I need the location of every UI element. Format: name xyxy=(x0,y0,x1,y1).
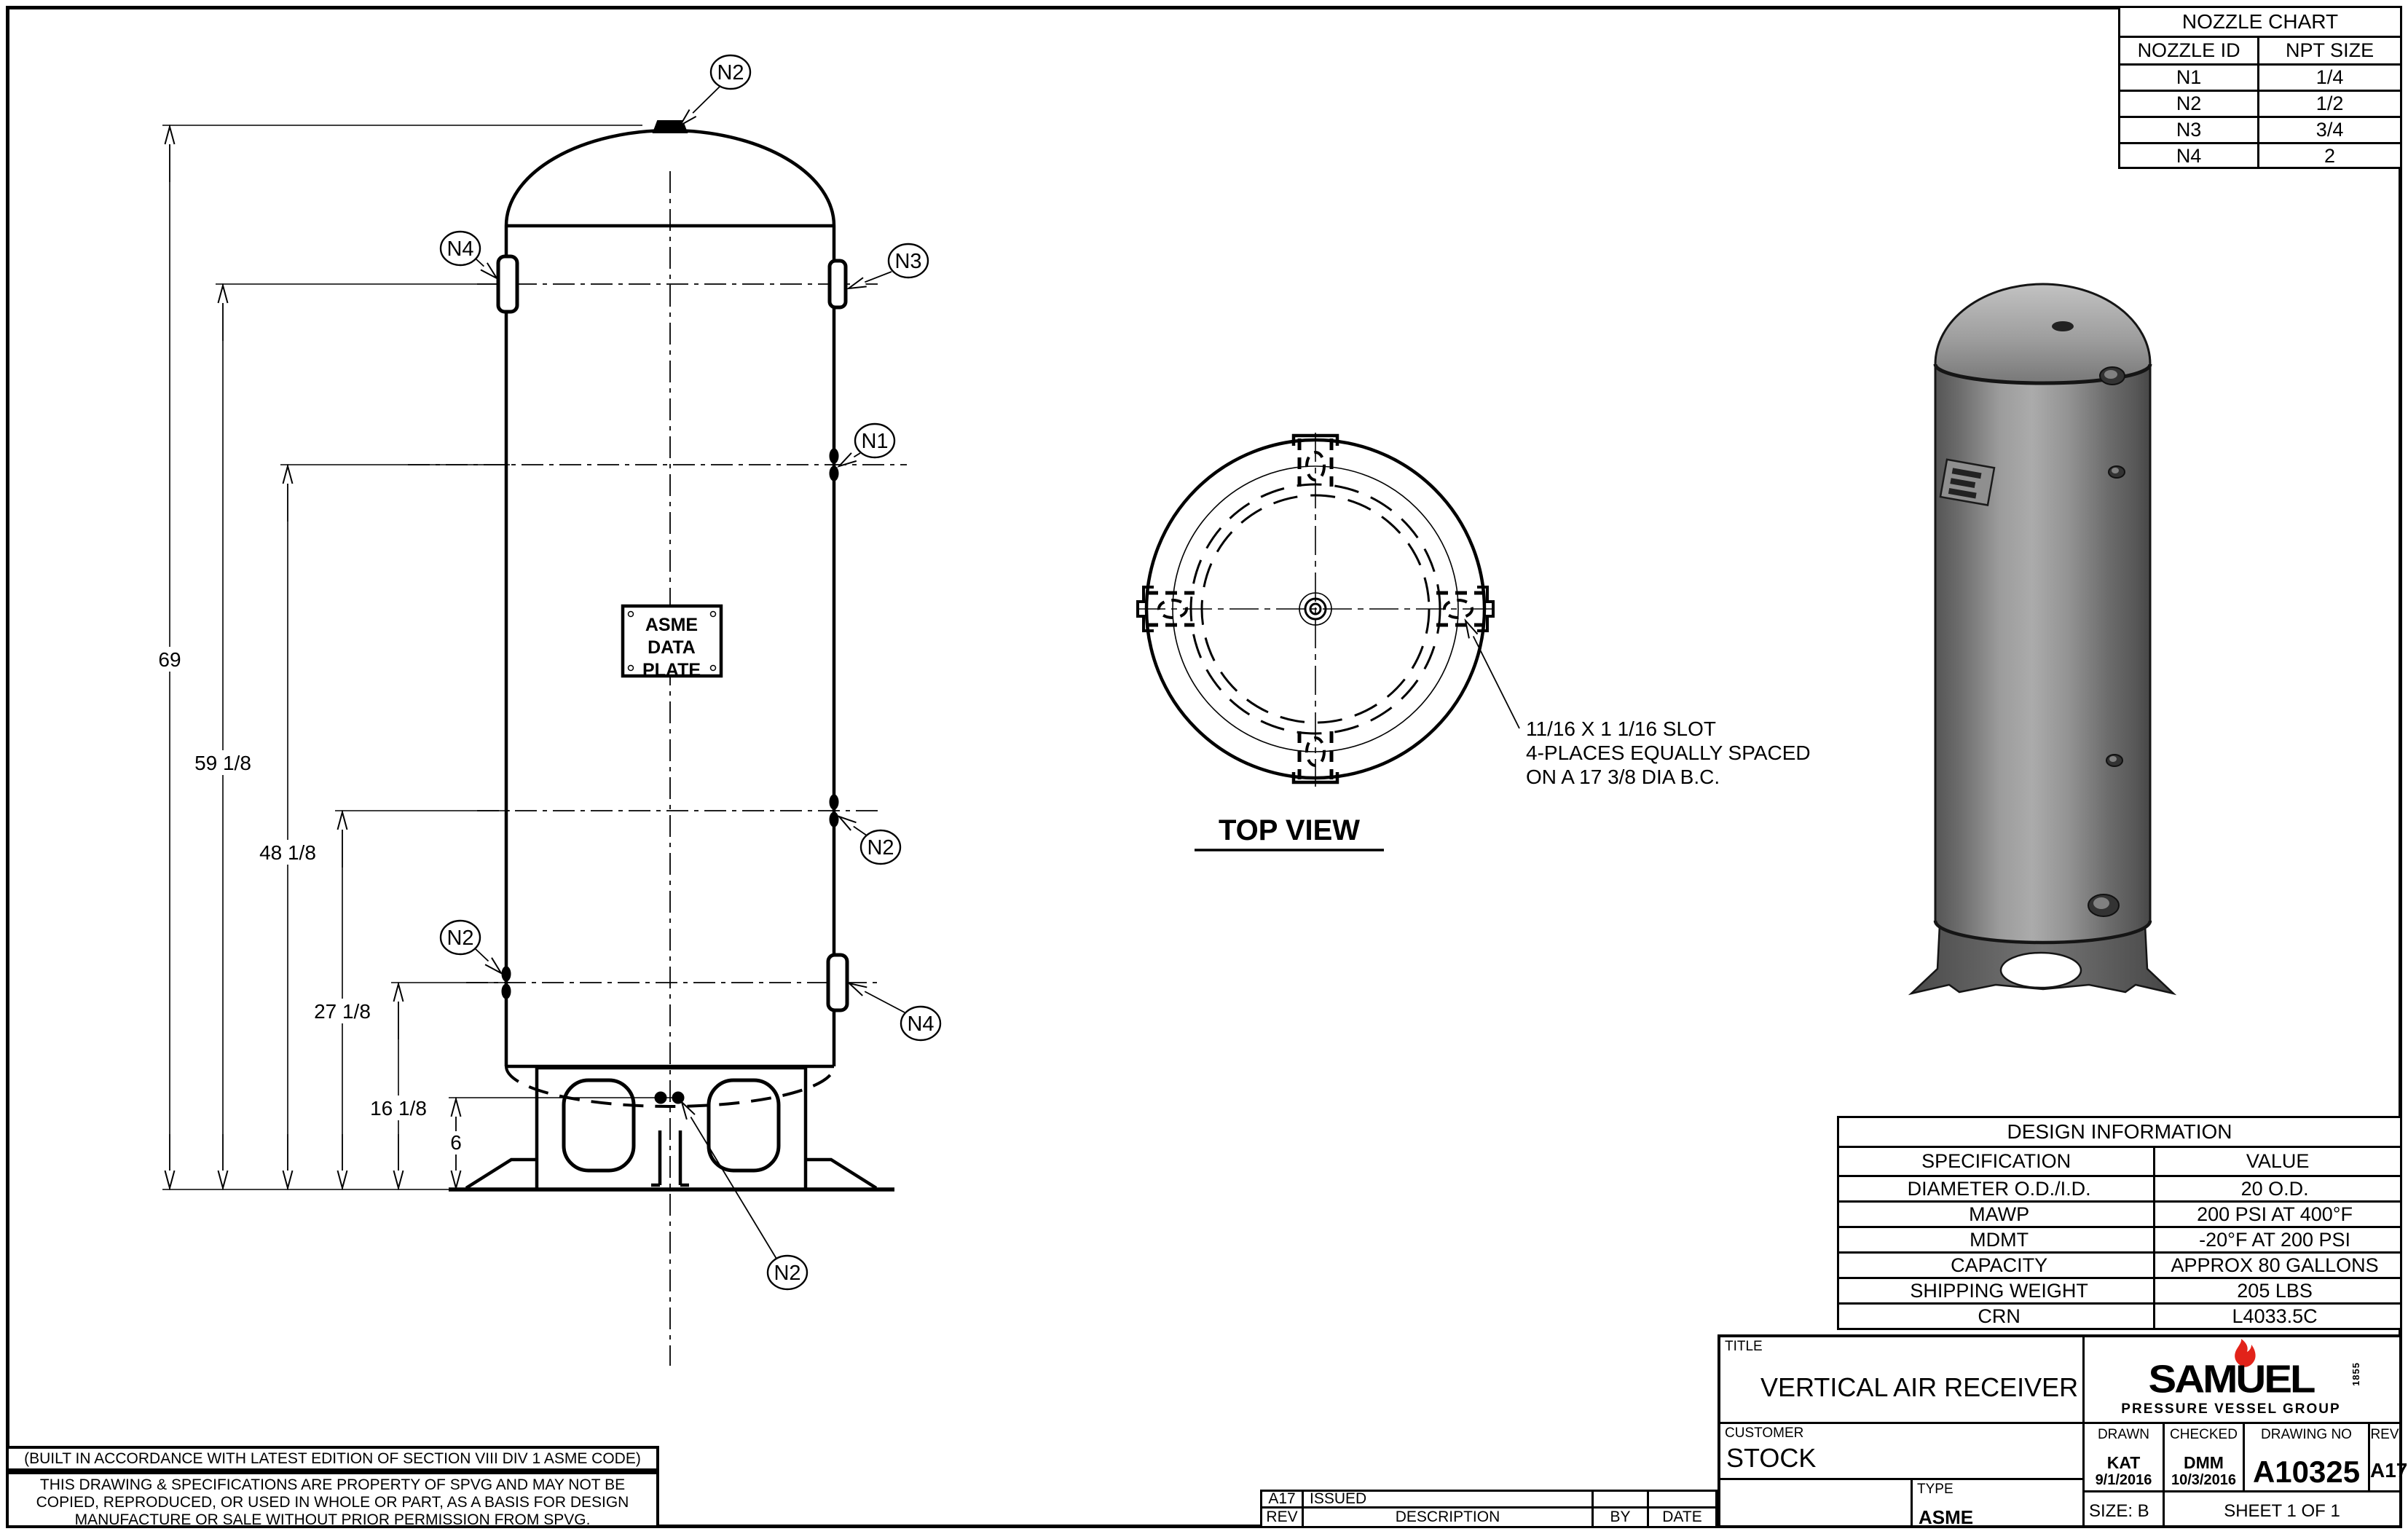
nozzle-n4-lower-right xyxy=(828,955,847,1010)
nozzle-size: 3/4 xyxy=(2257,118,2400,142)
drawing-no-cell: DRAWING NO A10325 xyxy=(2245,1424,2370,1492)
design-information-table: DESIGN INFORMATION SPECIFICATION VALUE D… xyxy=(1837,1116,2402,1330)
nozzle-size: 1/4 xyxy=(2257,66,2400,90)
size-value: SIZE: B xyxy=(2089,1501,2149,1522)
drawn-cell: DRAWN KAT 9/1/2016 xyxy=(2085,1424,2165,1492)
design-info-title: DESIGN INFORMATION xyxy=(1839,1118,2400,1146)
spec-value: -20°F AT 200 PSI xyxy=(2153,1228,2400,1251)
type-cell: TYPE ASME xyxy=(1913,1480,2085,1528)
callout-n2-bottom: N2 xyxy=(774,1262,800,1285)
property-note-line3: MANUFACTURE OR SALE WITHOUT PRIOR PERMIS… xyxy=(9,1511,656,1529)
sheet-value: SHEET 1 OF 1 xyxy=(2165,1501,2399,1522)
revision-date xyxy=(1647,1492,1715,1506)
property-note-line2: COPIED, REPRODUCED, OR USED IN WHOLE OR … xyxy=(9,1494,656,1511)
render-top-port xyxy=(2052,321,2074,331)
skirt-cutout-left xyxy=(564,1080,634,1171)
drawn-by: KAT xyxy=(2085,1453,2163,1473)
revision-by xyxy=(1591,1492,1647,1506)
drawing-sheet: 69 59 1/8 48 1/8 27 1/8 16 1/8 6 xyxy=(0,0,2408,1534)
callout-n4-lower-right: N4 xyxy=(907,1012,934,1036)
spec-label: SHIPPING WEIGHT xyxy=(1839,1279,2153,1302)
nozzle-n4-upper-left xyxy=(498,256,517,312)
callout-n2-top: N2 xyxy=(717,61,744,84)
spec-label: CAPACITY xyxy=(1839,1254,2153,1277)
data-plate-line3: PLATE xyxy=(642,660,701,680)
render-3d xyxy=(1911,284,2173,994)
nozzle-n1 xyxy=(830,449,838,463)
skirt-cutout-right xyxy=(709,1080,779,1171)
property-note-line1: THIS DRAWING & SPECIFICATIONS ARE PROPER… xyxy=(9,1476,656,1494)
title-cell: TITLE VERTICAL AIR RECEIVER xyxy=(1720,1337,2085,1424)
callout-n1-right: N1 xyxy=(861,430,888,453)
render-shell xyxy=(1935,364,2150,943)
nozzle-chart-col2: NPT SIZE xyxy=(2257,38,2400,63)
size-cell: SIZE: B xyxy=(2085,1492,2165,1528)
render-skirt-cutout xyxy=(2001,953,2081,988)
spec-value: L4033.5C xyxy=(2153,1305,2400,1328)
customer-label: CUSTOMER xyxy=(1725,1425,1803,1441)
dimension-lines xyxy=(170,125,456,1189)
title-block: TITLE VERTICAL AIR RECEIVER SAMUEL 1855 … xyxy=(1718,1334,2402,1528)
dimension-labels: 69 59 1/8 48 1/8 27 1/8 16 1/8 6 xyxy=(153,647,469,1155)
rev-value: A17 xyxy=(2370,1459,2399,1482)
slot-note-line1: 11/16 X 1 1/16 SLOT xyxy=(1526,717,1716,740)
spare-cell xyxy=(1720,1480,1913,1528)
logo-cell: SAMUEL 1855 PRESSURE VESSEL GROUP xyxy=(2085,1337,2399,1424)
nozzle-chart-title: NOZZLE CHART xyxy=(2120,8,2400,36)
dim-6: 6 xyxy=(450,1131,462,1154)
revision-header-description: DESCRIPTION xyxy=(1302,1509,1591,1526)
render-data-plate xyxy=(1940,460,1994,506)
spec-label: MDMT xyxy=(1839,1228,2153,1251)
callout-n3-upper-right: N3 xyxy=(894,250,921,273)
dim-27: 27 1/8 xyxy=(314,1000,371,1023)
design-info-col2: VALUE xyxy=(2153,1148,2400,1175)
revision-rev: A17 xyxy=(1262,1492,1302,1506)
checked-date: 10/3/2016 xyxy=(2165,1472,2243,1489)
revision-table: A17 ISSUED REV DESCRIPTION BY DATE xyxy=(1260,1490,1718,1528)
dim-16: 16 1/8 xyxy=(370,1097,427,1120)
skirt-base xyxy=(449,1068,894,1189)
drawing-no: A10325 xyxy=(2245,1455,2368,1490)
logo-brand: SAMUEL xyxy=(2085,1357,2377,1402)
checked-cell: CHECKED DMM 10/3/2016 xyxy=(2165,1424,2245,1492)
revision-description: ISSUED xyxy=(1302,1492,1591,1506)
callout-n4-upper-left: N4 xyxy=(446,237,473,261)
property-note: THIS DRAWING & SPECIFICATIONS ARE PROPER… xyxy=(6,1471,659,1528)
sheet-cell: SHEET 1 OF 1 xyxy=(2165,1492,2399,1528)
type-value: ASME xyxy=(1919,1506,1973,1529)
data-plate-line1: ASME xyxy=(645,615,698,635)
spec-label: DIAMETER O.D./I.D. xyxy=(1839,1177,2153,1200)
asme-data-plate: ASME DATA PLATE xyxy=(623,606,721,680)
drawing-no-label: DRAWING NO xyxy=(2245,1427,2368,1443)
spec-value: 205 LBS xyxy=(2153,1279,2400,1302)
nozzle-id: N3 xyxy=(2120,118,2257,142)
revision-header-rev: REV xyxy=(1262,1509,1302,1526)
nozzle-size: 2 xyxy=(2257,144,2400,168)
dim-48: 48 1/8 xyxy=(259,841,316,864)
design-info-col1: SPECIFICATION xyxy=(1839,1148,2153,1175)
data-plate-line2: DATA xyxy=(648,637,696,658)
nozzle-n2-right xyxy=(830,795,838,809)
callout-n2-right: N2 xyxy=(867,836,894,860)
nozzle-id: N2 xyxy=(2120,92,2257,116)
nozzle-n3-upper-right xyxy=(830,261,846,307)
drawn-date: 9/1/2016 xyxy=(2085,1472,2163,1489)
top-view: 11/16 X 1 1/16 SLOT 4-PLACES EQUALLY SPA… xyxy=(1136,433,1811,850)
nozzle-chart-col1: NOZZLE ID xyxy=(2120,38,2257,63)
callout-n2-left: N2 xyxy=(446,927,473,950)
spec-value: 200 PSI AT 400°F xyxy=(2153,1203,2400,1226)
slot-note-line2: 4-PLACES EQUALLY SPACED xyxy=(1526,742,1811,764)
title-label: TITLE xyxy=(1725,1339,1763,1355)
samuel-logo: SAMUEL 1855 PRESSURE VESSEL GROUP xyxy=(2085,1337,2399,1422)
spec-label: CRN xyxy=(1839,1305,2153,1328)
rev-label: REV xyxy=(2370,1427,2399,1443)
nozzle-n2-left xyxy=(502,967,511,981)
checked-by: DMM xyxy=(2165,1453,2243,1473)
dim-overall: 69 xyxy=(158,648,181,671)
spec-value: 20 O.D. xyxy=(2153,1177,2400,1200)
nozzle-n2-drain xyxy=(655,1092,666,1104)
slot-note-leader xyxy=(1465,621,1519,728)
customer-cell: CUSTOMER STOCK xyxy=(1720,1424,2085,1480)
code-note: (BUILT IN ACCORDANCE WITH LATEST EDITION… xyxy=(6,1446,659,1471)
front-view: 69 59 1/8 48 1/8 27 1/8 16 1/8 6 xyxy=(153,55,940,1366)
slot-note-line3: ON A 17 3/8 DIA B.C. xyxy=(1526,766,1720,788)
spec-label: MAWP xyxy=(1839,1203,2153,1226)
spec-value: APPROX 80 GALLONS xyxy=(2153,1254,2400,1277)
customer-value: STOCK xyxy=(1726,1443,1816,1474)
dim-59: 59 1/8 xyxy=(194,752,251,774)
top-nozzle-fitting xyxy=(653,121,687,133)
drawing-title: VERTICAL AIR RECEIVER xyxy=(1760,1372,2078,1403)
checked-label: CHECKED xyxy=(2165,1427,2243,1443)
top-view-label: TOP VIEW xyxy=(1219,814,1360,846)
revision-header-date: DATE xyxy=(1647,1509,1715,1526)
type-label: TYPE xyxy=(1917,1482,1953,1498)
revision-header-by: BY xyxy=(1591,1509,1647,1526)
nozzle-chart: NOZZLE CHART NOZZLE ID NPT SIZE N1 1/4 N… xyxy=(2118,6,2402,169)
nozzle-id: N4 xyxy=(2120,144,2257,168)
drawn-label: DRAWN xyxy=(2085,1427,2163,1443)
nozzle-size: 1/2 xyxy=(2257,92,2400,116)
rev-cell: REV A17 xyxy=(2370,1424,2399,1492)
logo-tagline: PRESSURE VESSEL GROUP xyxy=(2085,1401,2377,1417)
nozzle-id: N1 xyxy=(2120,66,2257,90)
logo-est-year: 1855 xyxy=(2350,1362,2361,1386)
code-note-text: (BUILT IN ACCORDANCE WITH LATEST EDITION… xyxy=(24,1450,641,1467)
